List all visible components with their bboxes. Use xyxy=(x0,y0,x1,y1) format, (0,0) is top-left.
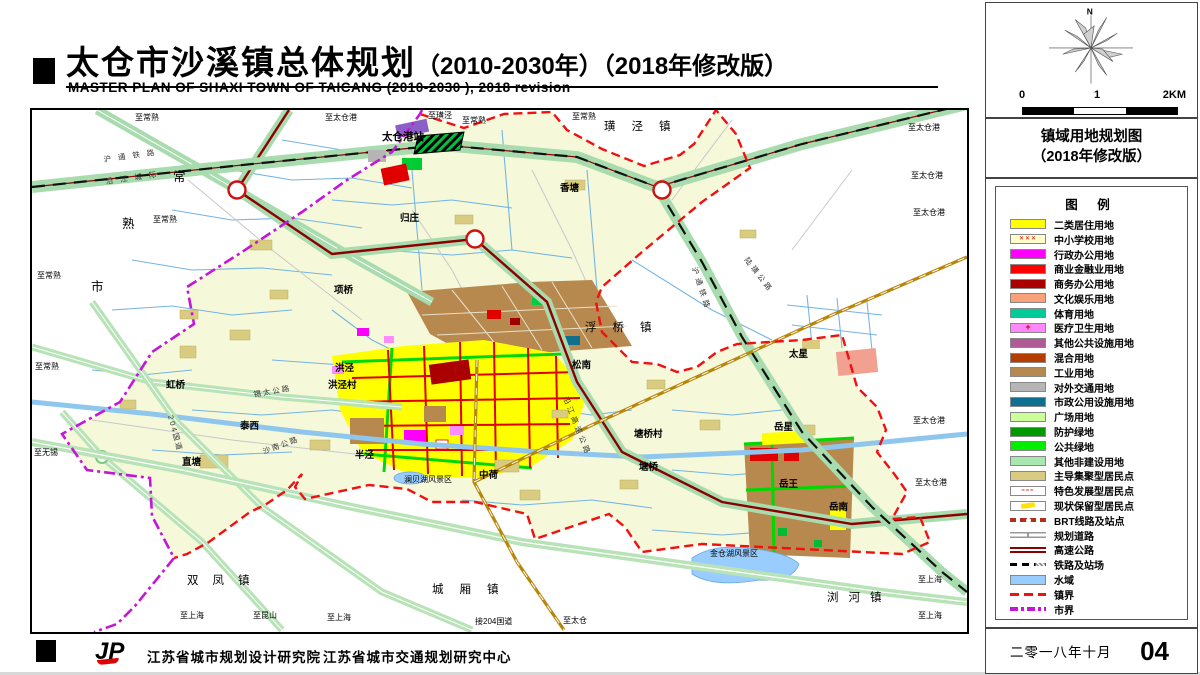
legend-item: ✕✕✕中小学校用地 xyxy=(1010,232,1187,247)
legend-item: 主导集聚型居民点 xyxy=(1010,469,1187,484)
legend-swatch xyxy=(1010,427,1046,437)
map-label: 至太仓港 xyxy=(911,170,943,180)
legend-label: 行政办公用地 xyxy=(1054,247,1114,262)
map-label: 至上海 xyxy=(918,610,942,620)
compass-rose: N xyxy=(1036,7,1146,96)
map-label: 洪泾村 xyxy=(328,379,357,391)
legend-label: 其他公共设施用地 xyxy=(1054,335,1134,350)
legend-swatch xyxy=(1010,456,1046,466)
map-label: 岳南 xyxy=(829,501,849,513)
map-subtitle-panel: 镇域用地规划图 （2018年修改版） xyxy=(985,118,1198,178)
legend-swatch xyxy=(1010,501,1046,511)
legend-item: 混合用地 xyxy=(1010,350,1187,365)
legend-swatch xyxy=(1010,264,1046,274)
map-label: 半泾 xyxy=(355,449,375,461)
map-label: 至璜泾 xyxy=(428,110,452,120)
legend-item: 文化娱乐用地 xyxy=(1010,291,1187,306)
black-square-marker xyxy=(33,58,55,84)
map-label: 至无锡 xyxy=(34,448,58,457)
legend-label: 中小学校用地 xyxy=(1054,232,1114,247)
legend-item: 商业金融业用地 xyxy=(1010,261,1187,276)
title-zh: 太仓市沙溪镇总体规划 xyxy=(66,44,416,81)
map-label: 熟 xyxy=(122,216,135,231)
legend-item: 二类居住用地 xyxy=(1010,217,1187,232)
legend-item: 广场用地 xyxy=(1010,409,1187,424)
map-label: 至常熟 xyxy=(35,361,59,371)
map-label: 岳星 xyxy=(774,421,794,433)
title-en: MASTER PLAN OF SHAXI TOWN OF TAICANG (20… xyxy=(68,80,571,95)
map-label: 洪泾 xyxy=(335,362,355,374)
legend-label: 规划道路 xyxy=(1054,528,1094,543)
legend-swatch xyxy=(1010,279,1046,289)
map-label: 浏河镇 xyxy=(827,590,892,604)
legend-swatch xyxy=(1010,471,1046,481)
legend-swatch: + xyxy=(1010,323,1046,333)
legend-label: 水域 xyxy=(1054,572,1074,587)
legend-item: +医疗卫生用地 xyxy=(1010,321,1187,336)
legend-label: 混合用地 xyxy=(1054,350,1094,365)
map-label: 至上海 xyxy=(918,574,942,584)
map-label: 金仓湖风景区 xyxy=(710,548,758,558)
legend-label: 对外交通用地 xyxy=(1054,380,1114,395)
legend-swatch xyxy=(1010,382,1046,392)
legend-label: 医疗卫生用地 xyxy=(1054,320,1114,335)
legend-swatch xyxy=(1010,441,1046,451)
legend-label: 二类居住用地 xyxy=(1054,217,1114,232)
map-label: 中荷 xyxy=(479,469,499,481)
map-label: 直塘 xyxy=(182,456,202,468)
plan-date: 二零一八年十月 xyxy=(1010,641,1112,661)
scale-1: 1 xyxy=(1094,89,1100,101)
legend-item: ≈≈≈特色发展型居民点 xyxy=(1010,483,1187,498)
legend-item: 规划道路 xyxy=(1010,528,1187,543)
legend-swatch xyxy=(1010,547,1046,553)
legend-label: 镇界 xyxy=(1054,587,1074,602)
legend-item: 其他公共设施用地 xyxy=(1010,335,1187,350)
map-label: 璜泾镇 xyxy=(604,119,687,133)
legend-label: 文化娱乐用地 xyxy=(1054,291,1114,306)
legend-title: 图 例 xyxy=(996,194,1187,213)
map-label: 至昆山 xyxy=(253,610,277,620)
map-label: 澜贝湖风景区 xyxy=(404,475,452,484)
compass-scale-panel: N 0 1 2KM xyxy=(985,2,1198,118)
legend-swatch xyxy=(1010,593,1046,597)
legend-label: 主导集聚型居民点 xyxy=(1054,468,1134,483)
legend-swatch: ✕✕✕ xyxy=(1010,234,1046,244)
legend-item: 铁路及站场 xyxy=(1010,557,1187,572)
title-zh-sub: （2010-2030年）（2018年修改版） xyxy=(416,53,788,80)
institute-name-2: 江苏省城市交通规划研究中心 xyxy=(323,646,512,666)
map-label: 香塘 xyxy=(559,182,580,194)
legend-item: 公共绿地 xyxy=(1010,439,1187,454)
institute-name-1: 江苏省城市规划设计研究院 xyxy=(147,646,321,666)
legend-label: 铁路及站场 xyxy=(1054,557,1104,572)
legend-label: 现状保留型居民点 xyxy=(1054,498,1134,513)
jp-logo: JP xyxy=(95,638,124,666)
map-label: 至太仓港 xyxy=(913,415,945,425)
map-label: 岳王 xyxy=(779,478,799,490)
legend-item: 水域 xyxy=(1010,572,1187,587)
legend-swatch xyxy=(1010,308,1046,318)
header: 太仓市沙溪镇总体规划（2010-2030年）（2018年修改版） MASTER … xyxy=(0,0,980,108)
legend-label: BRT线路及站点 xyxy=(1054,513,1125,528)
map-label: 至常熟 xyxy=(572,111,596,121)
legend-item: 镇界 xyxy=(1010,587,1187,602)
map-frame: 太仓港站香塘归庄项桥洪泾洪泾村虹桥泰西直塘半泾中荷松南塘桥村塘桥太星岳星岳王岳南… xyxy=(30,108,969,634)
legend-label: 市政公用设施用地 xyxy=(1054,394,1134,409)
legend-swatch xyxy=(1010,532,1046,538)
map-label: 接204国道 xyxy=(475,616,512,626)
legend-item: 防护绿地 xyxy=(1010,424,1187,439)
legend-item: 工业用地 xyxy=(1010,365,1187,380)
map-label: 至太仓港 xyxy=(915,477,947,487)
page-number: 04 xyxy=(1140,636,1169,667)
legend-swatch xyxy=(1010,353,1046,363)
map-label: 至常熟 xyxy=(37,270,61,280)
map-canvas: 太仓港站香塘归庄项桥洪泾洪泾村虹桥泰西直塘半泾中荷松南塘桥村塘桥太星岳星岳王岳南… xyxy=(32,110,967,632)
legend-label: 商业金融业用地 xyxy=(1054,261,1124,276)
legend-item: 其他非建设用地 xyxy=(1010,454,1187,469)
map-label: 太仓港站 xyxy=(381,130,424,143)
legend-box: 图 例 二类居住用地✕✕✕中小学校用地行政办公用地商业金融业用地商务办公用地文化… xyxy=(995,186,1188,620)
legend-label: 公共绿地 xyxy=(1054,439,1094,454)
map-label: 至太仓港 xyxy=(908,122,940,132)
legend-swatch xyxy=(1010,367,1046,377)
legend-swatch xyxy=(1010,338,1046,348)
map-label: 至太仓 xyxy=(563,615,587,625)
legend-label: 广场用地 xyxy=(1054,409,1094,424)
legend-swatch xyxy=(1010,412,1046,422)
map-label: 项桥 xyxy=(334,284,354,296)
map-label: 归庄 xyxy=(400,212,420,224)
date-page-panel: 二零一八年十月 04 xyxy=(985,628,1198,674)
legend-label: 市界 xyxy=(1054,602,1074,617)
legend-item: 市界 xyxy=(1010,602,1187,617)
legend-label: 商务办公用地 xyxy=(1054,276,1114,291)
legend-label: 特色发展型居民点 xyxy=(1054,483,1134,498)
legend-label: 工业用地 xyxy=(1054,365,1094,380)
map-label: 松南 xyxy=(572,359,592,371)
map-subtitle-line1: 镇域用地规划图 xyxy=(986,128,1197,148)
legend-swatch: ≈≈≈ xyxy=(1010,486,1046,496)
map-label: 至常熟 xyxy=(153,214,177,224)
map-label: 塘桥 xyxy=(639,461,659,473)
legend-swatch xyxy=(1010,397,1046,407)
legend-swatch xyxy=(1010,518,1046,522)
page: { "header": { "title_zh": "太仓市沙溪镇总体规划", … xyxy=(0,0,1200,675)
map-label: 至常熟 xyxy=(462,115,486,125)
scale-2: 2KM xyxy=(1163,89,1186,101)
scale-0: 0 xyxy=(1019,89,1025,101)
legend-item: 体育用地 xyxy=(1010,306,1187,321)
map-label: 塘桥村 xyxy=(634,428,663,440)
footer: JP 江苏省城市规划设计研究院 江苏省城市交通规划研究中心 xyxy=(0,632,980,675)
scale-bar: 0 1 2KM xyxy=(1022,95,1178,113)
legend-panel: 图 例 二类居住用地✕✕✕中小学校用地行政办公用地商业金融业用地商务办公用地文化… xyxy=(985,178,1198,628)
map-label: 泰西 xyxy=(239,420,260,432)
legend-swatch xyxy=(1010,293,1046,303)
legend-item: 现状保留型居民点 xyxy=(1010,498,1187,513)
map-label: 至上海 xyxy=(180,610,204,620)
map-label: 至太仓港 xyxy=(325,112,357,122)
legend-swatch xyxy=(1010,249,1046,259)
legend-item: 对外交通用地 xyxy=(1010,380,1187,395)
map-label: 至常熟 xyxy=(135,112,159,122)
legend-label: 体育用地 xyxy=(1054,306,1094,321)
legend-label: 防护绿地 xyxy=(1054,424,1094,439)
map-label: 常 xyxy=(173,170,186,184)
map-label: 太星 xyxy=(789,348,809,360)
map-subtitle-line2: （2018年修改版） xyxy=(986,148,1197,168)
black-square-marker xyxy=(36,640,56,662)
legend-swatch xyxy=(1010,607,1046,611)
legend-item: 行政办公用地 xyxy=(1010,247,1187,262)
map-label: 城厢镇 xyxy=(432,582,515,596)
legend-item: 市政公用设施用地 xyxy=(1010,395,1187,410)
legend-swatch xyxy=(1010,219,1046,229)
map-label: 虹桥 xyxy=(166,379,186,391)
compass-n-label: N xyxy=(1087,7,1093,16)
legend-swatch xyxy=(1010,575,1046,585)
legend-label: 高速公路 xyxy=(1054,542,1094,557)
map-label: 双凤镇 xyxy=(187,573,264,587)
map-label: 市 xyxy=(91,279,104,294)
scale-bar-segments xyxy=(1022,107,1178,115)
map-label: 沪通铁路 xyxy=(103,146,162,164)
legend-label: 其他非建设用地 xyxy=(1054,454,1124,469)
legend-item: 商务办公用地 xyxy=(1010,276,1187,291)
map-label: 至上海 xyxy=(327,612,351,622)
map-label: 浮桥镇 xyxy=(585,320,668,334)
legend-item: 高速公路 xyxy=(1010,543,1187,558)
legend-item: BRT线路及站点 xyxy=(1010,513,1187,528)
map-label: 陆璜公路 xyxy=(742,255,776,294)
legend-rows: 二类居住用地✕✕✕中小学校用地行政办公用地商业金融业用地商务办公用地文化娱乐用地… xyxy=(996,217,1187,617)
map-label: 至太仓港 xyxy=(913,207,945,217)
legend-swatch xyxy=(1010,563,1046,566)
